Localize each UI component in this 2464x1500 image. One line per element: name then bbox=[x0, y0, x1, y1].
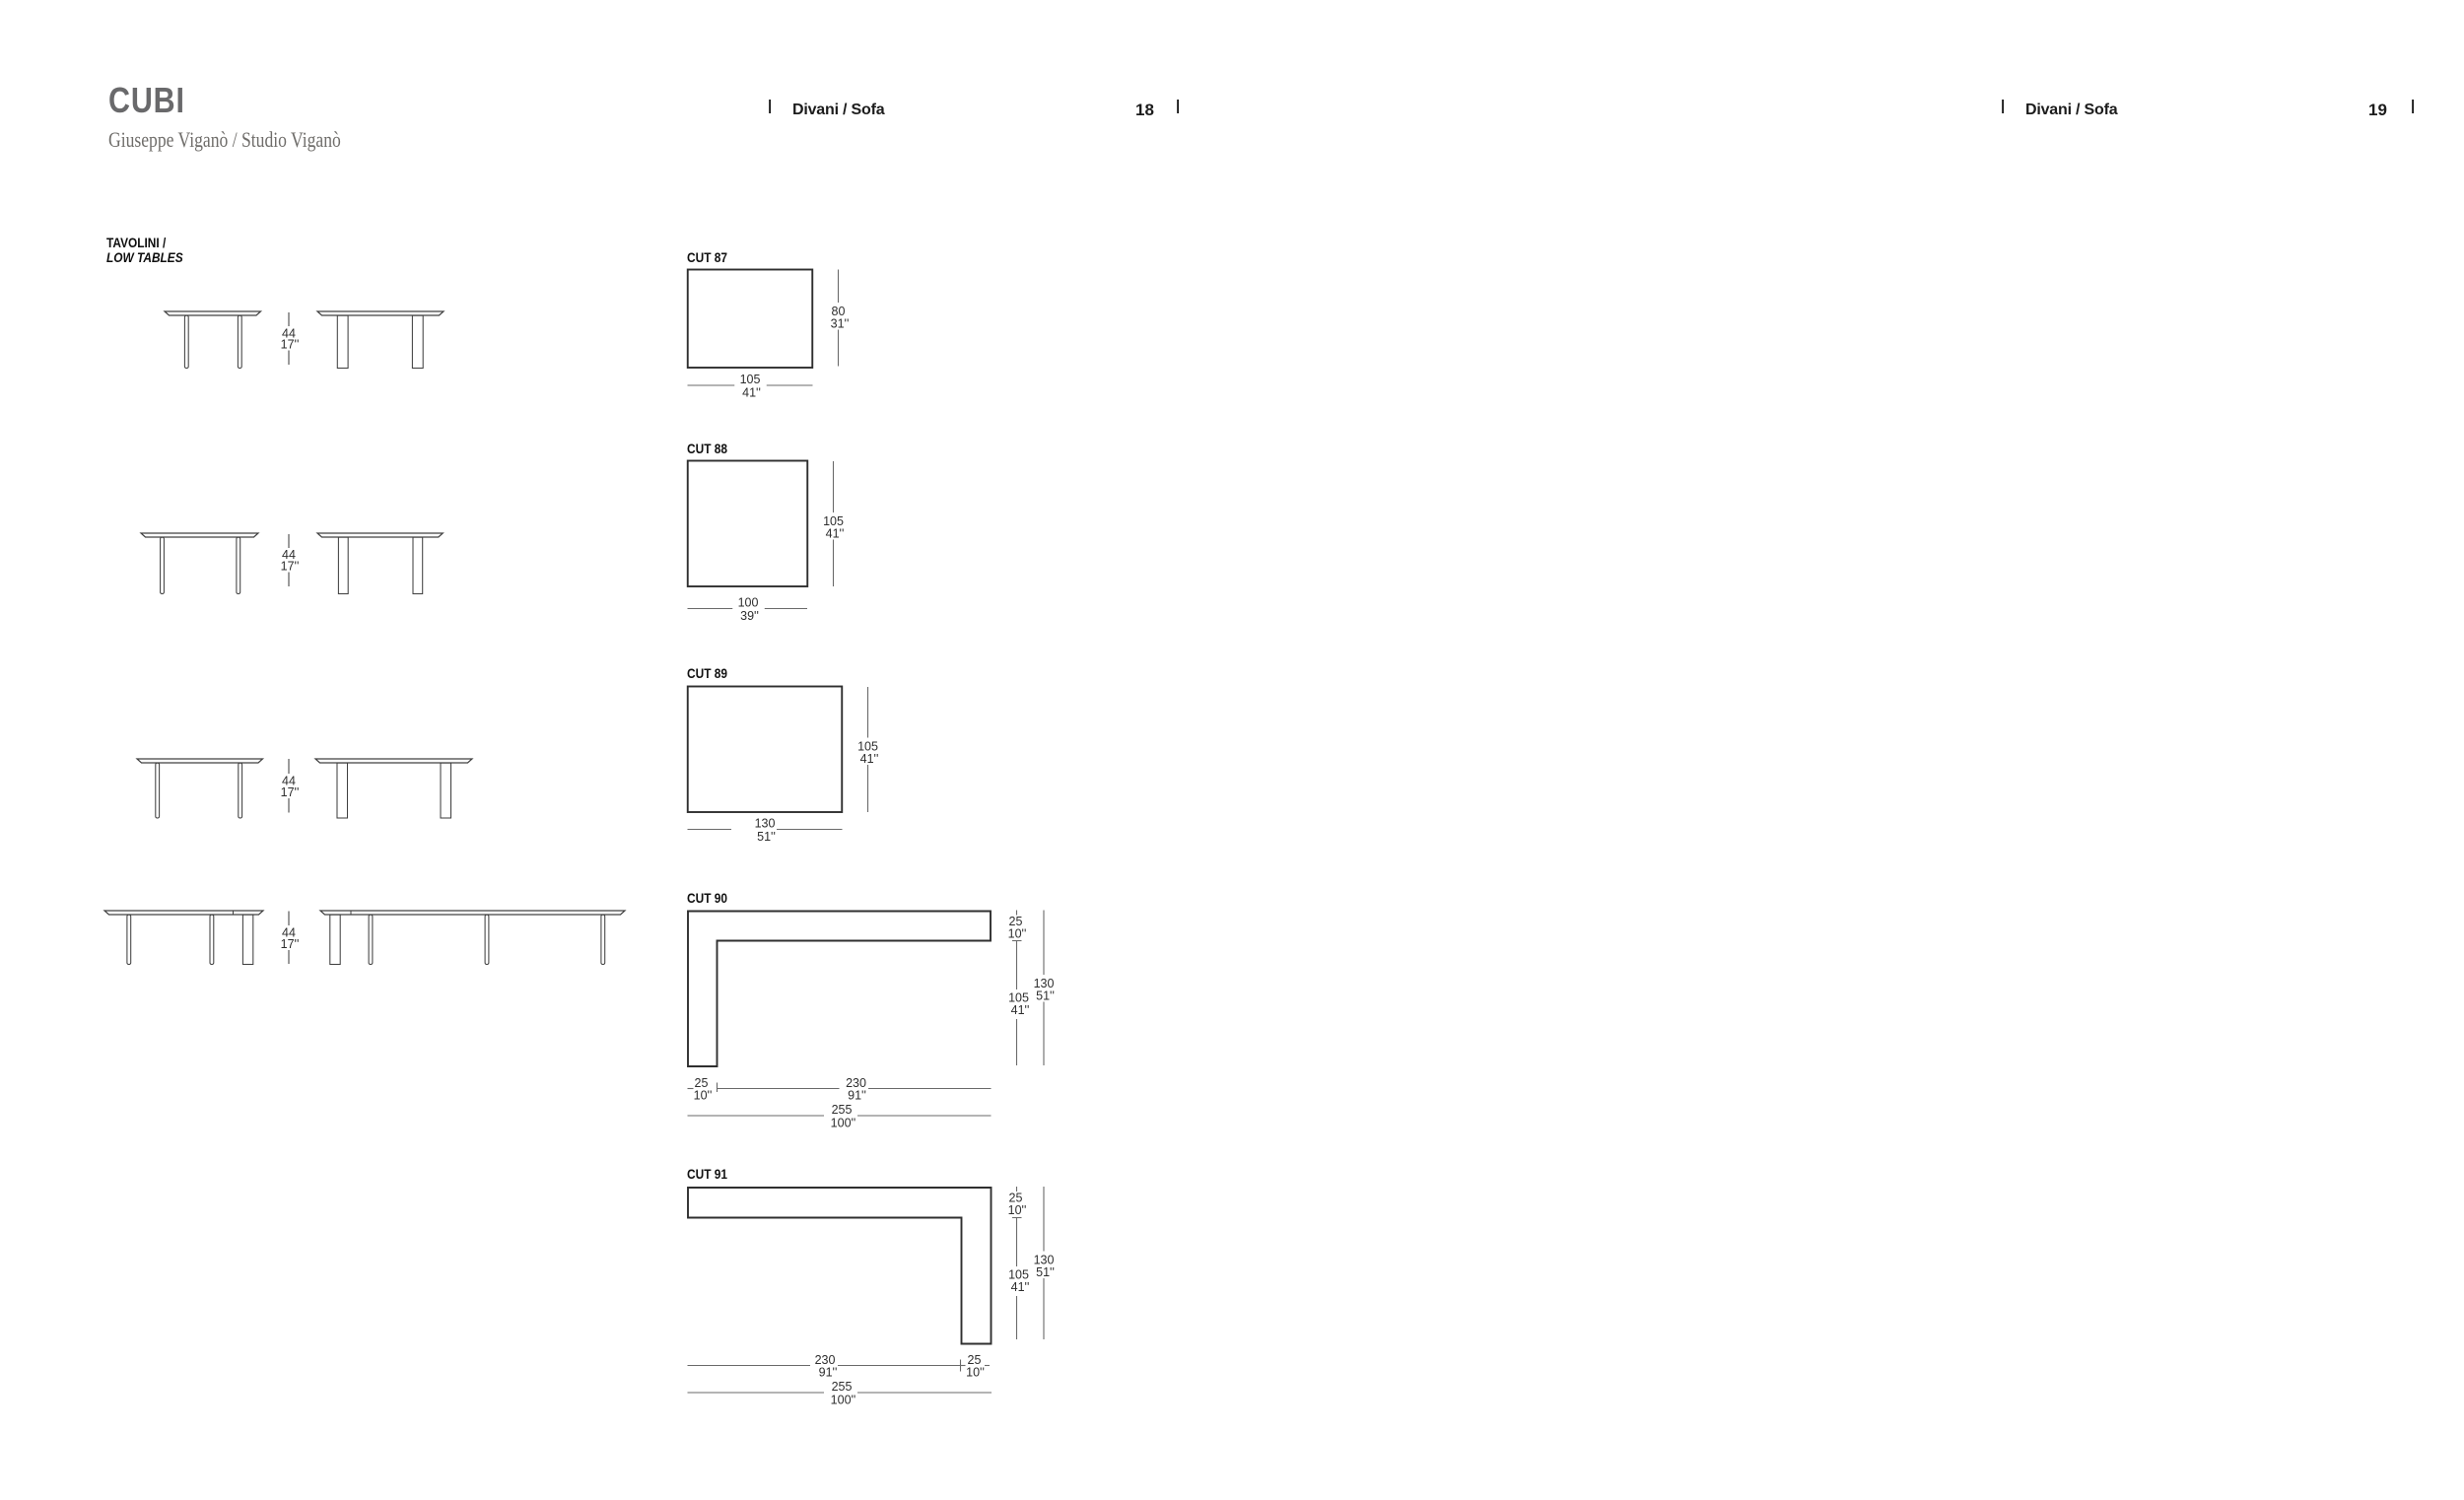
svg-text:39'': 39'' bbox=[740, 609, 759, 623]
svg-text:255: 255 bbox=[832, 1380, 853, 1394]
svg-text:41'': 41'' bbox=[1011, 1003, 1030, 1017]
svg-text:17'': 17'' bbox=[281, 338, 300, 352]
svg-text:51'': 51'' bbox=[1036, 989, 1055, 1003]
svg-text:CUT 88: CUT 88 bbox=[687, 441, 727, 456]
svg-text:CUT 91: CUT 91 bbox=[687, 1166, 727, 1182]
svg-text:41'': 41'' bbox=[742, 386, 761, 400]
svg-text:17'': 17'' bbox=[281, 937, 300, 951]
svg-text:10'': 10'' bbox=[1008, 1203, 1027, 1217]
svg-text:CUT 87: CUT 87 bbox=[687, 249, 727, 265]
svg-text:91'': 91'' bbox=[819, 1366, 838, 1380]
svg-text:100: 100 bbox=[738, 596, 759, 610]
svg-text:100'': 100'' bbox=[831, 1117, 856, 1130]
svg-text:10'': 10'' bbox=[694, 1089, 713, 1103]
svg-text:41'': 41'' bbox=[826, 527, 845, 541]
svg-text:41'': 41'' bbox=[860, 752, 879, 766]
svg-text:17'': 17'' bbox=[281, 560, 300, 574]
svg-text:130: 130 bbox=[755, 817, 776, 831]
svg-text:100'': 100'' bbox=[831, 1394, 856, 1407]
svg-text:17'': 17'' bbox=[281, 785, 300, 799]
svg-text:91'': 91'' bbox=[848, 1089, 866, 1103]
svg-text:51'': 51'' bbox=[757, 830, 776, 844]
svg-text:10'': 10'' bbox=[966, 1366, 985, 1380]
svg-text:255: 255 bbox=[832, 1103, 853, 1117]
svg-text:51'': 51'' bbox=[1036, 1265, 1055, 1279]
svg-text:31'': 31'' bbox=[831, 317, 850, 331]
svg-text:CUT 90: CUT 90 bbox=[687, 890, 727, 906]
svg-text:41'': 41'' bbox=[1011, 1280, 1030, 1294]
svg-text:CUT 89: CUT 89 bbox=[687, 665, 727, 681]
svg-text:105: 105 bbox=[740, 373, 761, 386]
svg-text:10'': 10'' bbox=[1008, 927, 1027, 941]
